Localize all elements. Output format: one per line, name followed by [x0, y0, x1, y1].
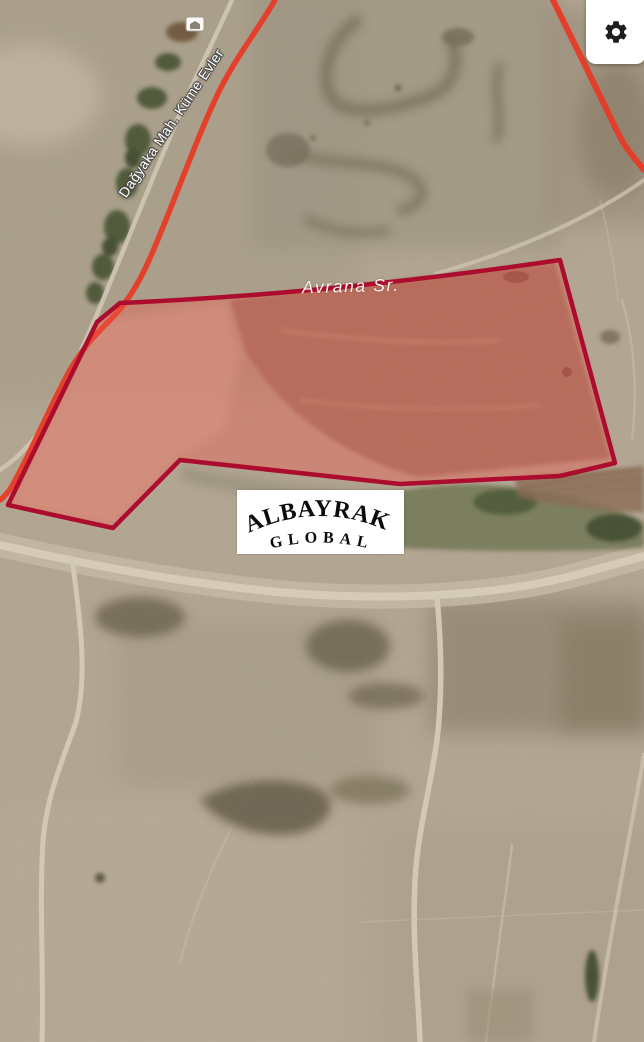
gear-icon [603, 19, 630, 46]
settings-button[interactable] [586, 0, 644, 64]
watermark-text: ALBAYRAK GLOBAL [237, 490, 404, 554]
map-viewport[interactable]: Dağyaka Mah. Küme Evler Avrana Sr. ALBAY… [0, 0, 644, 1042]
svg-text:GLOBAL: GLOBAL [268, 529, 372, 552]
watermark-line2: GLOBAL [268, 529, 372, 552]
stream-label: Avrana Sr. [302, 275, 400, 299]
watermark-logo: ALBAYRAK GLOBAL [237, 490, 404, 554]
building-icon [186, 17, 204, 31]
